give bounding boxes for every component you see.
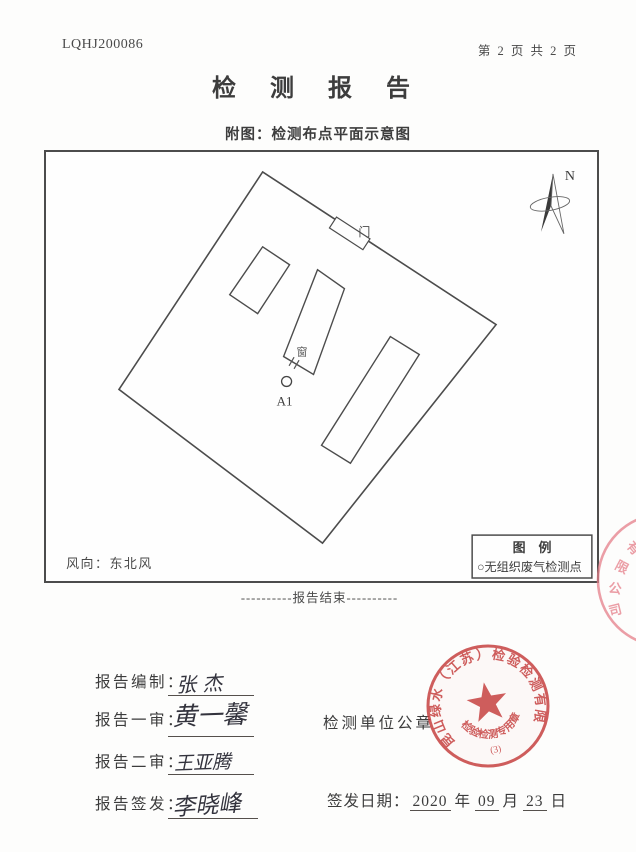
issue-date-month: 09 (475, 793, 499, 811)
issue-date-year: 2020 (410, 793, 451, 811)
second-review-signature: 王亚腾 (174, 747, 232, 776)
edge-seal-char-1: 有 (624, 538, 636, 558)
prepared-by-signature-line: 张 杰 (168, 668, 254, 696)
site-plan-diagram: 门 窗 A1 风向：东北风 图 例 ○无组织废气检测点 N (46, 152, 597, 581)
issued-by-signature-line: 李晓峰 (168, 786, 258, 819)
seal-number: (3) (489, 743, 502, 756)
legend-title: 图 例 (513, 540, 552, 555)
issue-date-label: 签发日期： (327, 793, 410, 810)
report-page: LQHJ200086 第 2 页 共 2 页 检 测 报 告 附图：检测布点平面… (0, 0, 636, 852)
door-label: 门 (358, 224, 370, 239)
issue-date-day: 23 (523, 793, 547, 811)
report-number: LQHJ200086 (62, 37, 143, 53)
issued-by-signature: 李晓峰 (171, 784, 242, 823)
prepared-by-signature: 张 杰 (175, 667, 223, 698)
page-indicator: 第 2 页 共 2 页 (478, 40, 578, 59)
wind-direction-label: 风向：东北风 (66, 556, 153, 571)
sample-point-marker (282, 376, 292, 386)
official-seal-stamp: 昆山绿水（江苏）检验检测有限公司 检验检测专用章 (3) (412, 630, 564, 782)
first-review-signature: 黄一馨 (171, 695, 247, 734)
window-label: 窗 (297, 345, 308, 359)
day-suffix: 日 (551, 793, 568, 810)
edge-seal-char-3: 公 (608, 580, 623, 597)
year-suffix: 年 (455, 793, 472, 810)
figure-caption: 附图：检测布点平面示意图 (0, 123, 636, 144)
month-suffix: 月 (503, 793, 520, 810)
north-label: N (565, 169, 575, 184)
issue-date-line: 签发日期：2020年09月23日 (327, 789, 571, 811)
first-review-signature-line: 黄一馨 (168, 696, 254, 737)
sample-point-label: A1 (277, 393, 293, 408)
second-review-signature-line: 王亚腾 (168, 748, 254, 775)
report-end-text: ----------报告结束---------- (44, 587, 595, 606)
legend-item: ○无组织废气检测点 (477, 559, 582, 574)
page-title: 检 测 报 告 (0, 68, 636, 103)
edge-seal-partial-stamp: 有 限 公 司 (586, 518, 636, 650)
edge-seal-char-4: 司 (607, 601, 623, 619)
site-plan-frame: 门 窗 A1 风向：东北风 图 例 ○无组织废气检测点 N (44, 150, 599, 583)
edge-seal-char-2: 限 (613, 557, 632, 577)
